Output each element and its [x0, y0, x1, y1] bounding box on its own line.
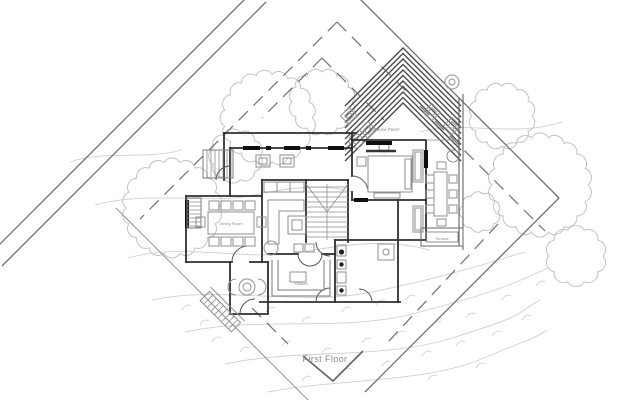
door-swing [240, 299, 255, 314]
planter-pot [447, 150, 459, 162]
tree-canopy [289, 69, 354, 134]
setback-dashed-line [140, 22, 337, 219]
bench [264, 182, 304, 192]
chair [221, 201, 231, 210]
floor-caption: First Floor [303, 354, 348, 364]
stair-treads [207, 150, 231, 178]
setback-dashed-line [322, 58, 384, 120]
chair [449, 175, 457, 183]
tree-canopy [469, 83, 534, 148]
stair-run [203, 150, 233, 178]
planter-pot [445, 75, 459, 89]
stair-break [306, 184, 327, 212]
chair [449, 205, 457, 213]
bench [374, 193, 400, 198]
chair [209, 201, 219, 210]
chair [437, 219, 446, 226]
chair [233, 201, 243, 210]
stair-treads [187, 202, 201, 226]
pillow [405, 159, 411, 189]
hall-cabinet [259, 158, 267, 164]
wall-segment [230, 262, 268, 314]
road-edge-line [0, 0, 252, 252]
chair [426, 175, 434, 183]
entry-set [199, 279, 266, 333]
chair [437, 162, 446, 169]
contour-line [185, 268, 548, 332]
bistro-table [239, 279, 255, 295]
bath-fixtures [337, 244, 394, 295]
tree-canopy [123, 158, 222, 258]
side-table [357, 157, 366, 166]
contour-line [70, 150, 182, 162]
chair [449, 190, 457, 198]
contour-lines [70, 122, 562, 392]
sectional-sofa [268, 200, 304, 244]
bistro-table [243, 283, 251, 291]
sink-basin [339, 262, 343, 266]
door-swing [352, 176, 368, 192]
chair [245, 237, 255, 246]
chair [233, 237, 243, 246]
tree-canopy [546, 226, 605, 287]
chair [426, 190, 434, 198]
first-floor-site-plan: Dining Room Kitchen Entrance Porch Terra… [0, 0, 640, 400]
side-table [264, 241, 278, 255]
chair [221, 237, 231, 246]
planter-pot [449, 79, 455, 85]
shower [378, 244, 394, 260]
fixture [337, 272, 346, 283]
dining-room-label: Dining Room [219, 221, 243, 226]
door-swing [298, 254, 310, 266]
planter [448, 122, 456, 130]
ground-ticks [182, 281, 545, 381]
chair [245, 201, 255, 210]
shower-drain [383, 249, 389, 255]
drawing-sheet: Dining Room Kitchen Entrance Porch Terra… [0, 0, 640, 400]
coffee-table [292, 220, 302, 230]
chair [426, 205, 434, 213]
porch-label: Entrance Porch [368, 127, 400, 132]
chair [209, 237, 219, 246]
terrace-label: Terrace [435, 236, 449, 241]
hall-cabinet [280, 155, 294, 167]
bedroom-set [357, 150, 423, 232]
outdoor-table [434, 172, 447, 216]
drain [339, 288, 343, 292]
toilet-seat [339, 249, 344, 254]
trees [123, 69, 606, 286]
stair-run [187, 198, 201, 228]
tree-canopy [459, 192, 499, 232]
door-swing [310, 254, 322, 266]
kitchen-label: Kitchen [294, 281, 307, 286]
ottoman [294, 244, 303, 252]
cabinet [415, 208, 421, 230]
door-swing [359, 289, 372, 302]
contour-line [128, 243, 430, 258]
cabinet [415, 152, 421, 180]
coffee-table [288, 216, 306, 234]
boundary-line-se [365, 198, 559, 392]
tree-canopy [220, 70, 315, 166]
tree-canopy [489, 133, 592, 237]
chair [258, 279, 266, 295]
